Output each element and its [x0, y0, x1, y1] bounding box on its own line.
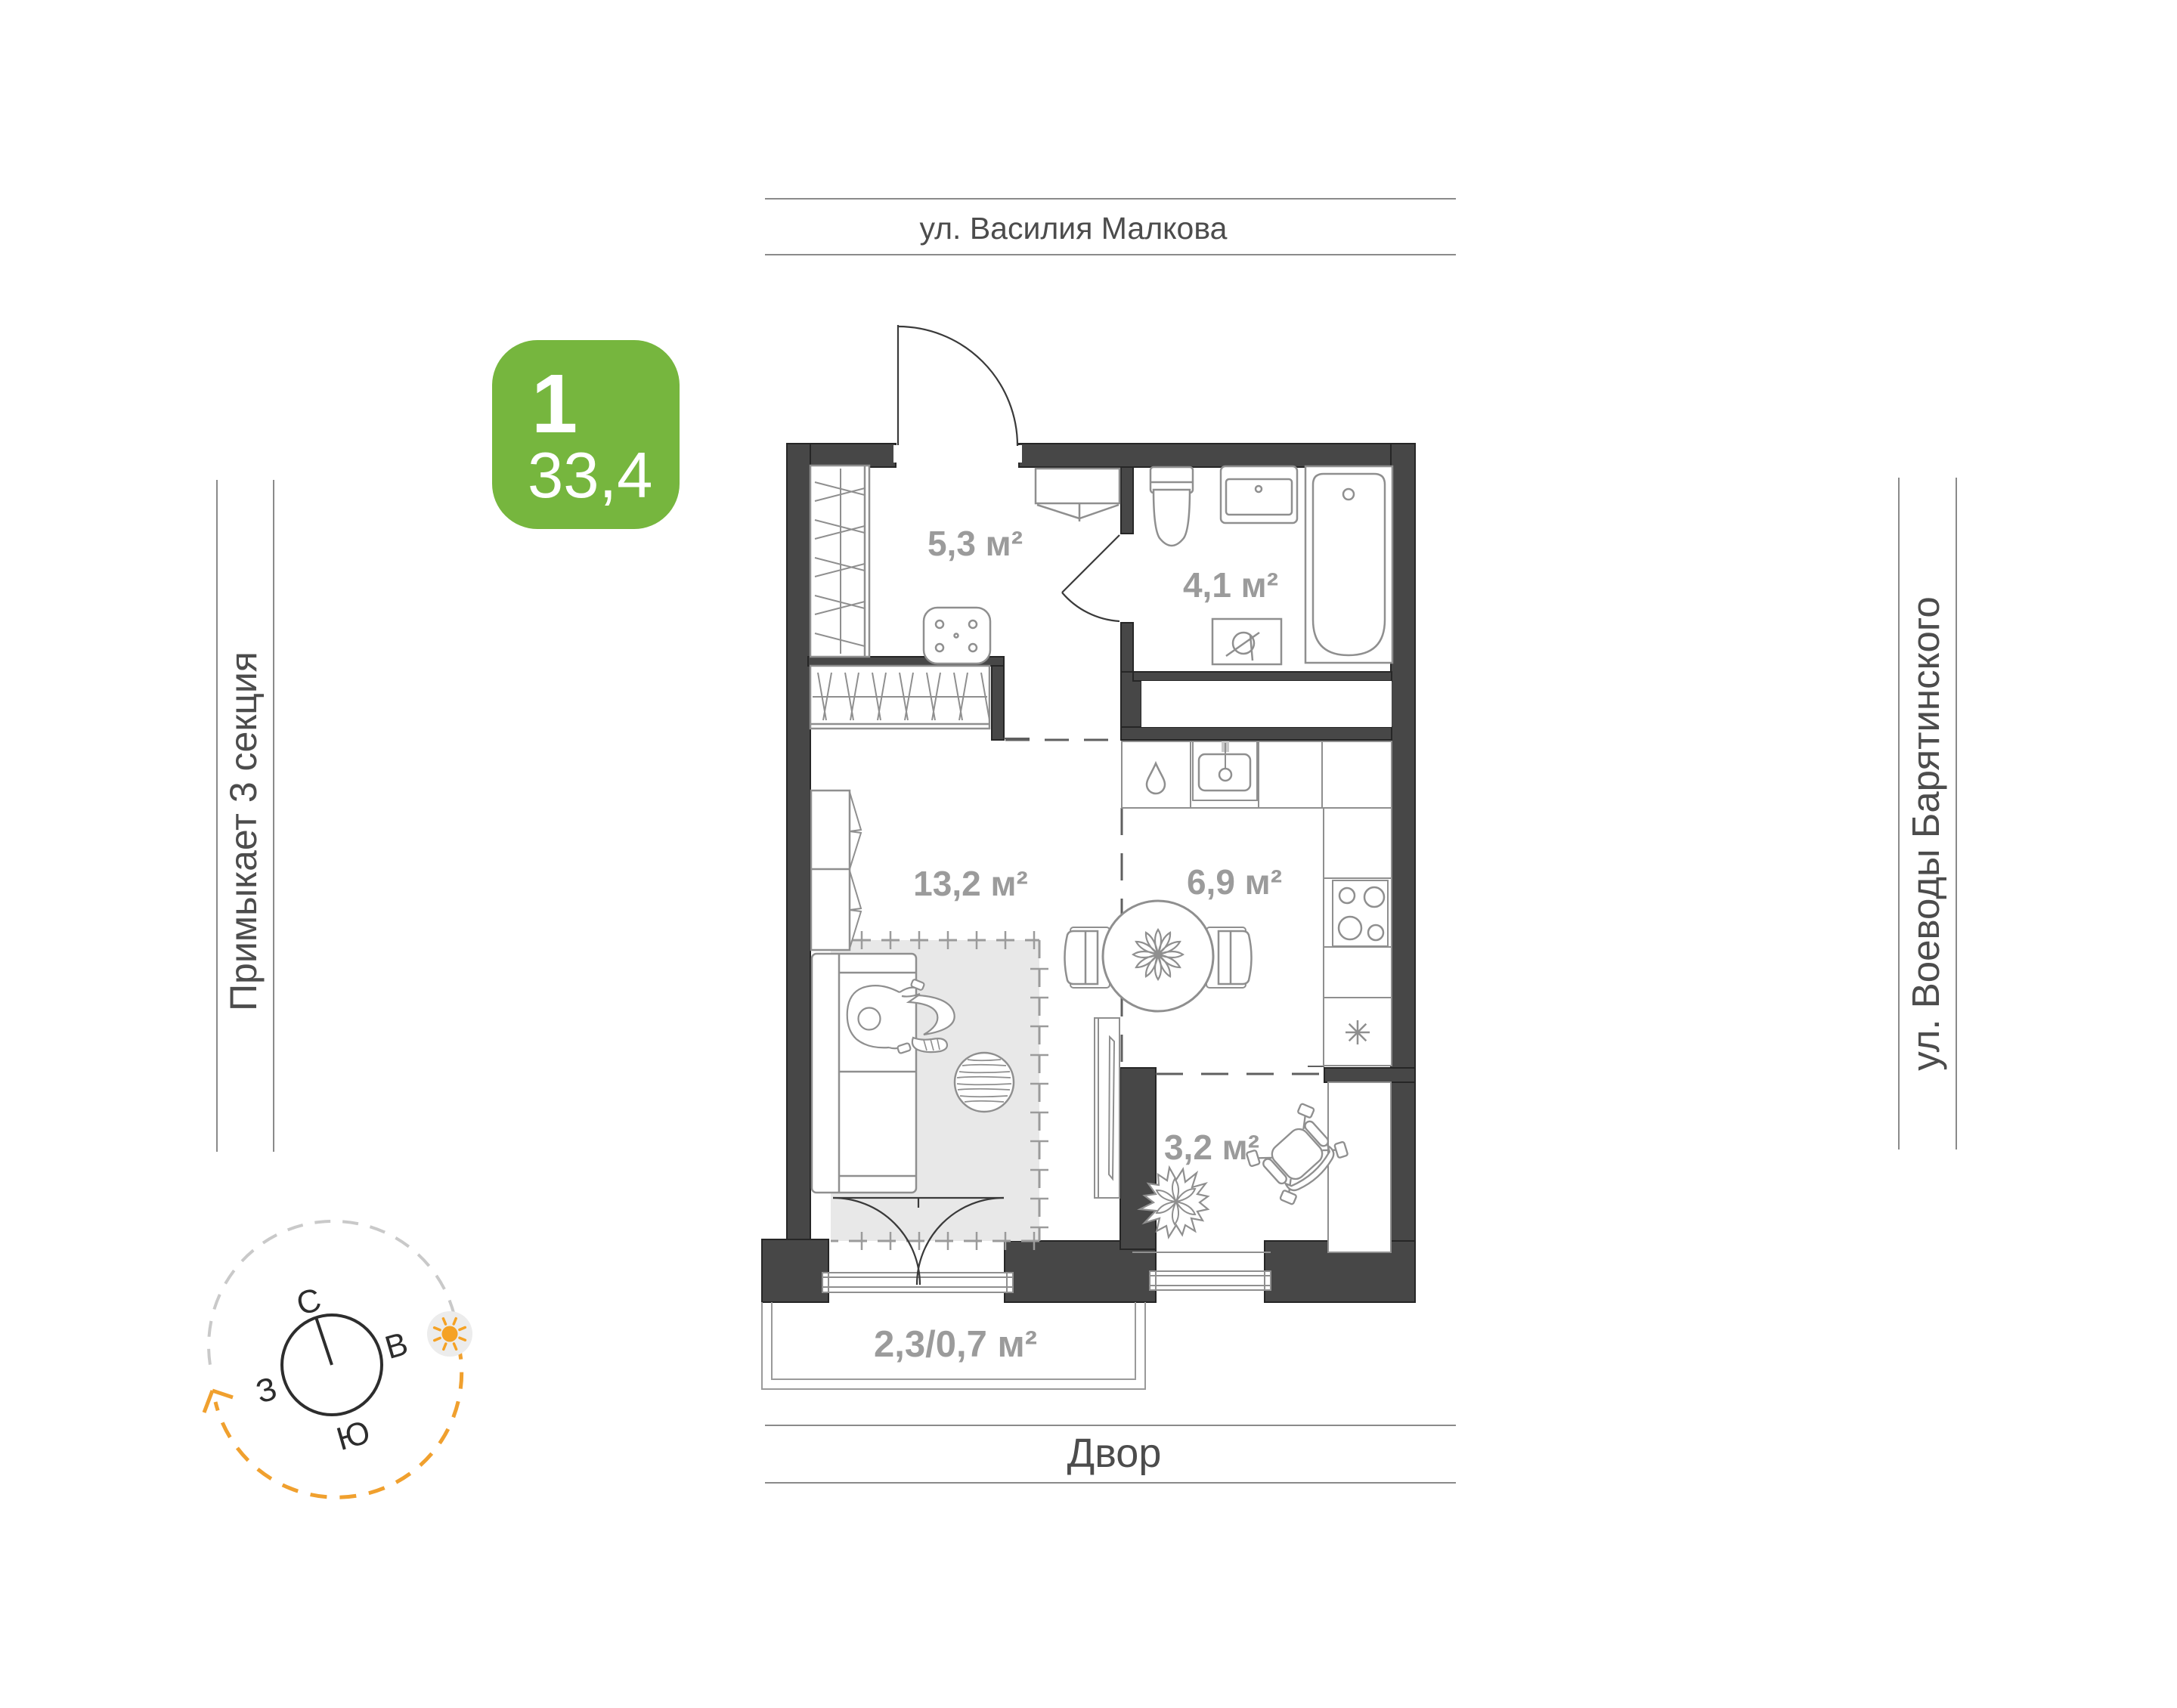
svg-text:ул. Василия Малкова: ул. Василия Малкова	[920, 211, 1228, 246]
svg-text:Двор: Двор	[1067, 1431, 1162, 1476]
svg-text:3,2 м²: 3,2 м²	[1164, 1128, 1259, 1167]
svg-text:13,2 м²: 13,2 м²	[913, 864, 1028, 903]
svg-text:6,9 м²: 6,9 м²	[1187, 862, 1282, 902]
svg-text:З: З	[252, 1370, 280, 1410]
svg-text:1: 1	[531, 357, 578, 450]
svg-text:4,1 м²: 4,1 м²	[1183, 565, 1278, 605]
svg-text:5,3 м²: 5,3 м²	[927, 524, 1023, 563]
svg-text:33,4: 33,4	[528, 440, 652, 512]
svg-text:С: С	[293, 1282, 325, 1323]
svg-text:2,3/0,7 м²: 2,3/0,7 м²	[874, 1324, 1037, 1365]
svg-text:ул. Воеводы Барятинского: ул. Воеводы Барятинского	[1904, 596, 1947, 1070]
svg-text:Примыкает 3 секция: Примыкает 3 секция	[222, 651, 265, 1011]
svg-text:Ю: Ю	[333, 1414, 374, 1458]
svg-text:В: В	[381, 1326, 412, 1366]
